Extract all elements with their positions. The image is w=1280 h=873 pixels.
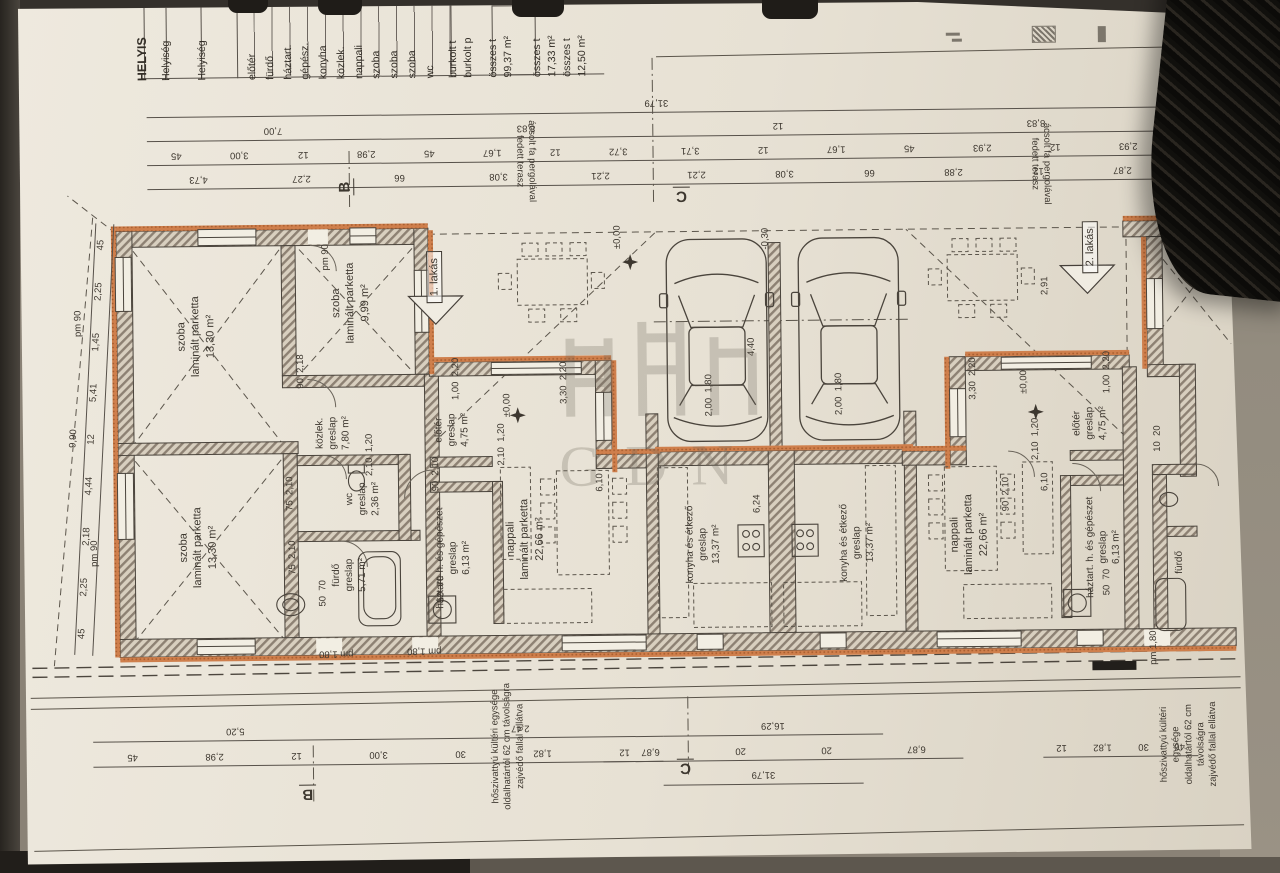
axis-marker: C [673,186,690,204]
axis-marker: B [336,179,354,196]
heat-pump-note: hőszivattyú kültéri egysége oldalhatártó… [1158,697,1221,792]
gdn-watermark: GDN [547,315,769,522]
unit-1-label: 1. lakás [426,251,443,303]
paper-clip [318,0,362,15]
background-left-edge [0,0,20,873]
watermark-house-icon [549,315,765,422]
axis-marker: B [299,784,316,802]
paper-clip [512,0,564,17]
watermark-text: GDN [548,431,769,500]
pergola-note: ácsolt fa pergolával fedett terasz [1027,123,1053,205]
heat-pump-note: hőszivattyú kültéri egysége oldalhatártó… [489,683,527,810]
photo-of-floor-plan: HELYISHelyiségHelyiségelőtérfürdőháztart… [0,0,1280,873]
axis-marker: C [677,758,694,776]
paper-clip [228,0,268,13]
floor-plan-paper: HELYISHelyiségHelyiségelőtérfürdőháztart… [8,2,1254,868]
unit-2-label: 2. lakás [1082,221,1099,273]
cutoff-mark [946,33,960,36]
cutoff-mark [952,39,962,42]
cutoff-mark [1032,26,1056,43]
floor-plan-content: HELYISHelyiségHelyiségelőtérfürdőháztart… [0,0,1280,873]
cutoff-mark [1098,26,1106,42]
pergola-note: ácsolt fa pergolával fedett terasz [512,120,538,202]
background-bottom [470,857,1280,873]
paper-clip [762,0,818,19]
